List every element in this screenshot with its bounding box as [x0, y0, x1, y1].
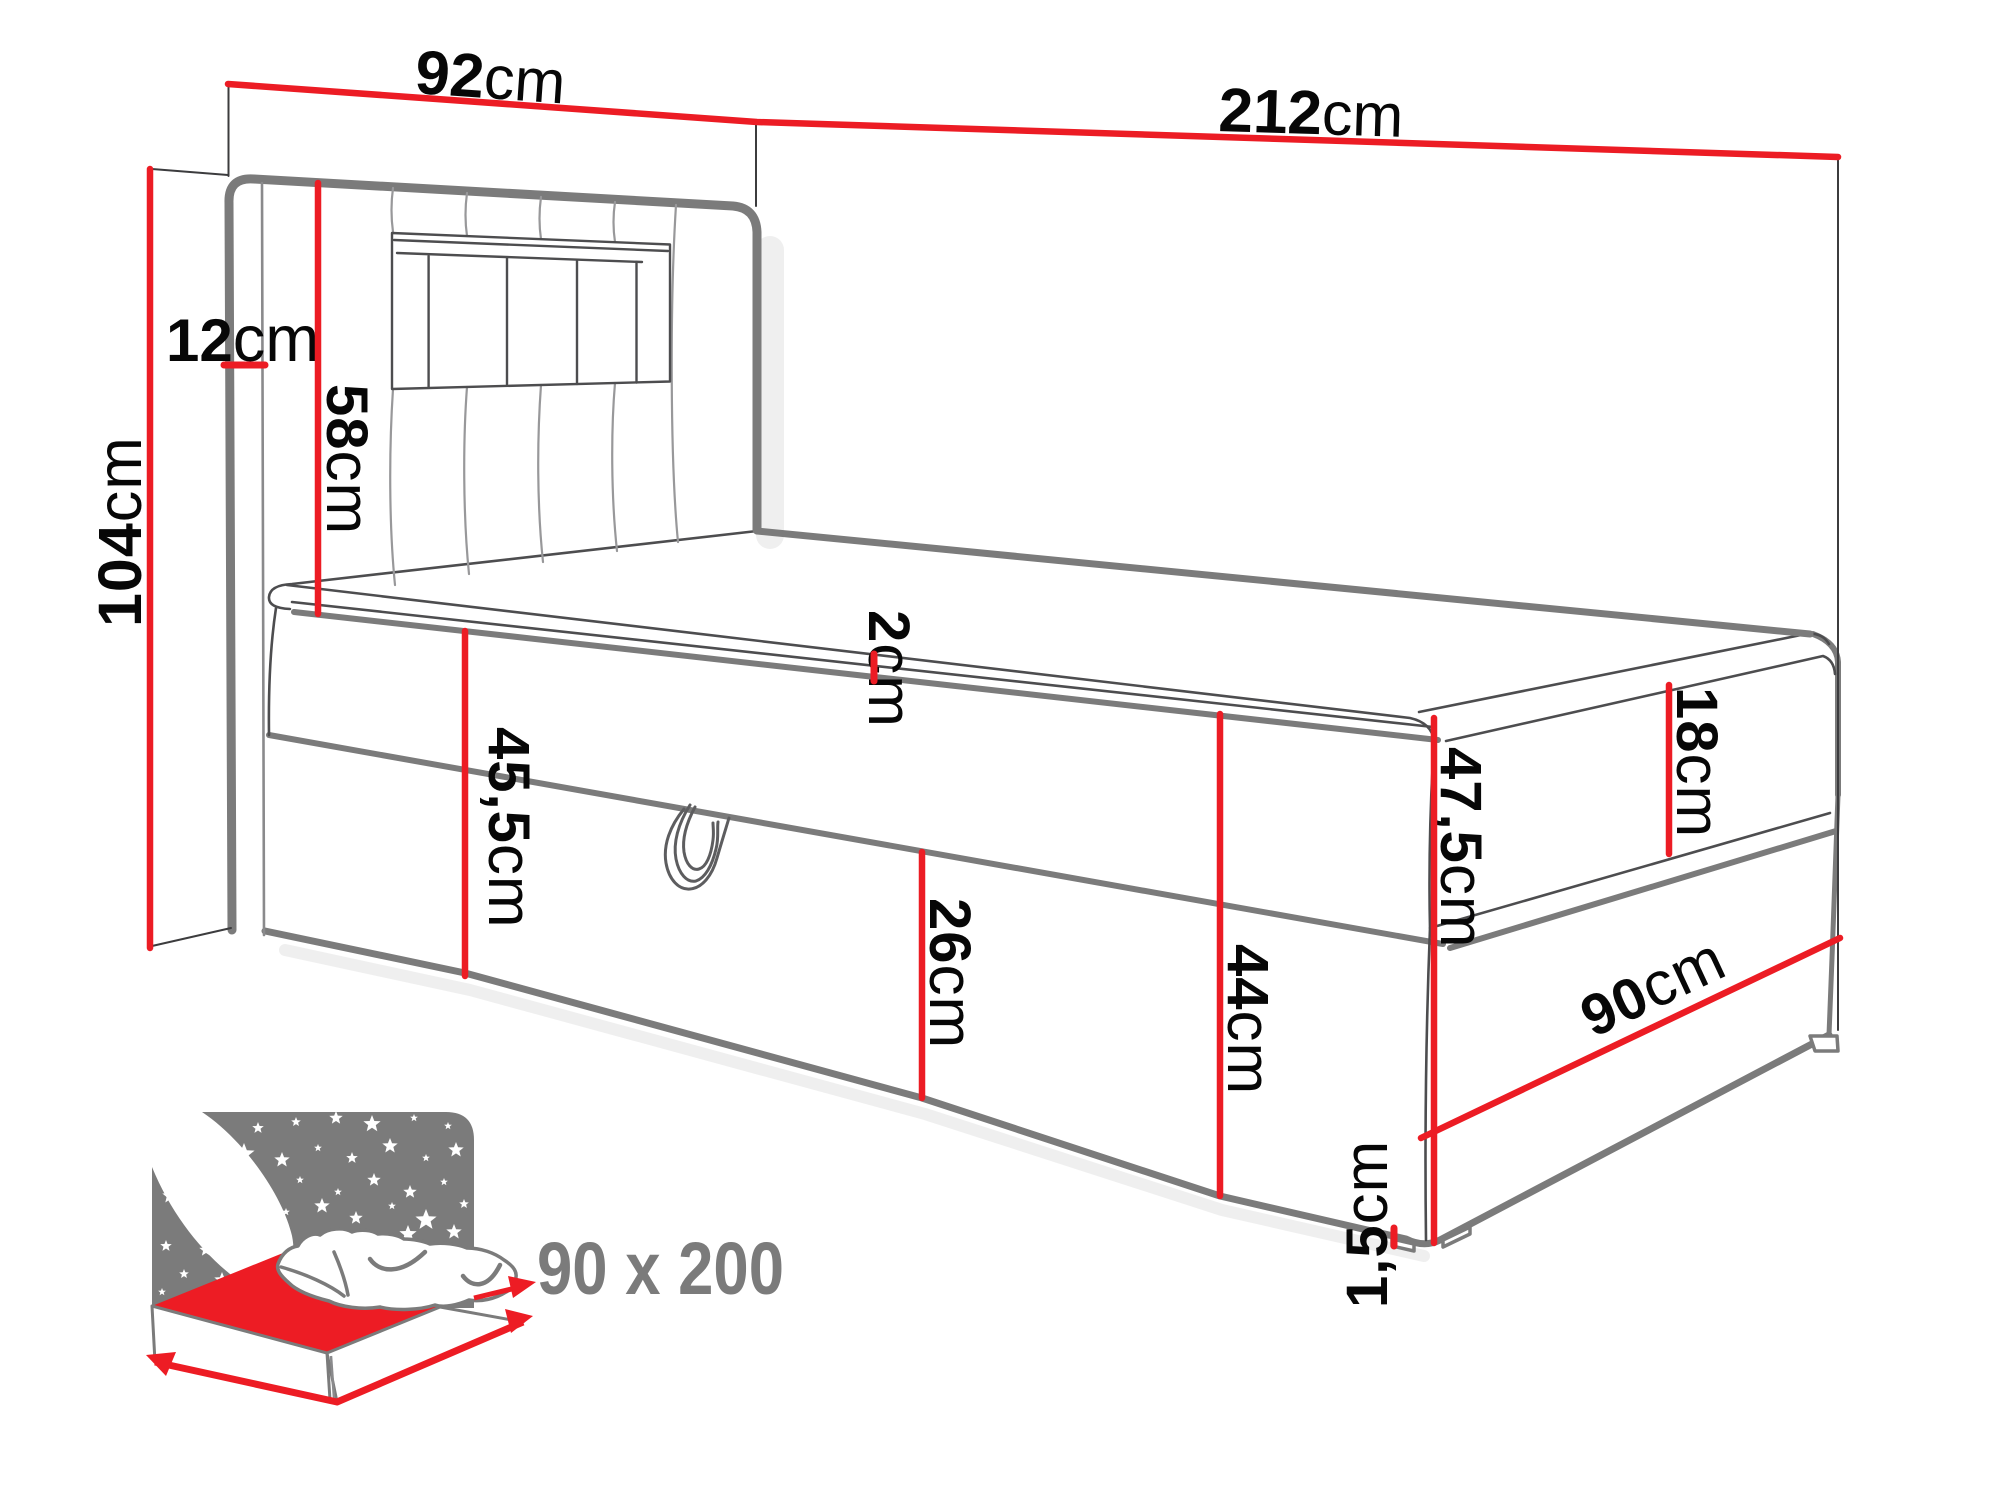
svg-text:104cm: 104cm [85, 436, 155, 627]
svg-text:90 x 200: 90 x 200 [537, 1227, 784, 1310]
svg-text:18cm: 18cm [1663, 687, 1732, 838]
svg-text:26cm: 26cm [916, 898, 985, 1049]
svg-text:2cm: 2cm [855, 610, 924, 728]
svg-text:44cm: 44cm [1214, 944, 1283, 1095]
svg-text:1,5cm: 1,5cm [1332, 1140, 1401, 1308]
svg-text:45,5cm: 45,5cm [475, 727, 544, 929]
svg-text:58cm: 58cm [313, 384, 382, 535]
svg-text:47,5cm: 47,5cm [1427, 747, 1496, 949]
